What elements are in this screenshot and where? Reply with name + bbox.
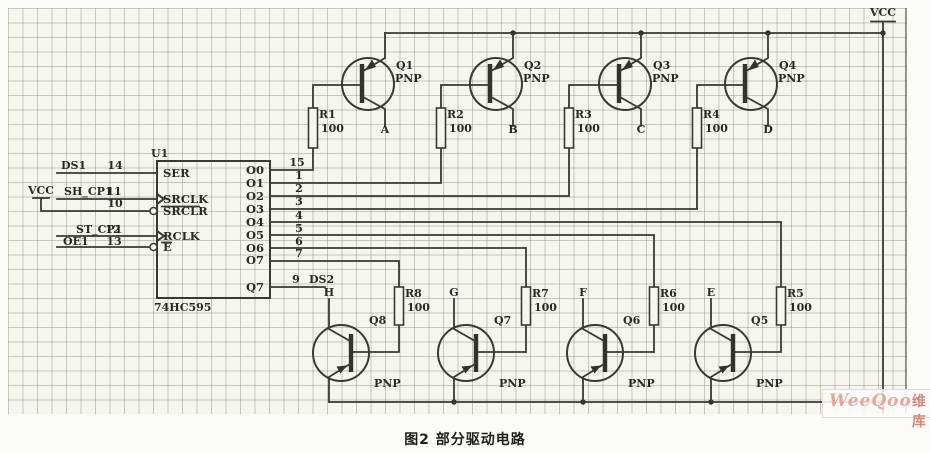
inversion-bubble-srclr: [150, 208, 157, 215]
resistor-body: [437, 108, 446, 148]
ic-74hc595: U1 74HC595 VCC DS1 14 SH_CP1 11 10 ST_CP…: [27, 147, 334, 314]
watermark: WeeQoo 维库: [822, 389, 930, 418]
resistor-value: 100: [577, 122, 600, 135]
pin-number-5: 5: [295, 222, 303, 235]
transistor-q8: Q8 PNP H: [313, 286, 401, 402]
resistor-value: 100: [662, 301, 685, 314]
net-label-f: F: [579, 286, 587, 299]
resistor-r7: R7 100: [522, 287, 558, 325]
ic-pin-name-o4: O4: [246, 215, 264, 229]
net-label-ds2: DS2: [309, 273, 334, 286]
pnp-arrow-icon: [622, 60, 633, 71]
ic-pin-name-o1: O1: [246, 176, 264, 190]
vcc-left-label: VCC: [27, 184, 54, 197]
collector-lead: [454, 299, 475, 341]
schematic-scan: VCC U1 74HC595: [0, 0, 930, 453]
resistor-r6: R6 100: [650, 287, 686, 325]
transistor-type: PNP: [499, 377, 526, 390]
pin-number-7: 7: [295, 247, 303, 260]
resistor-ref: R5: [787, 287, 804, 300]
resistor-body: [309, 108, 318, 148]
transistor-ref: Q4: [779, 59, 797, 72]
net-label-b: B: [508, 123, 517, 136]
transistor-type: PNP: [756, 377, 783, 390]
net-label-a: A: [380, 123, 390, 136]
resistor-r2: R2 100: [437, 108, 473, 148]
resistor-ref: R3: [575, 108, 592, 121]
transistor-q6: Q6 PNP F: [567, 286, 655, 402]
resistor-body: [650, 287, 659, 325]
transistor-ref: Q2: [524, 59, 541, 72]
ic-part-label: 74HC595: [154, 301, 211, 314]
ic-pin-name-o7: O7: [246, 253, 264, 267]
transistor-type: PNP: [374, 377, 401, 390]
pin-number-2: 2: [295, 182, 303, 195]
net-label-c: C: [637, 123, 646, 136]
transistor-ref: Q7: [494, 314, 511, 327]
ic-pin-name-o5: O5: [246, 228, 264, 242]
transistor-ref: Q3: [653, 59, 670, 72]
pnp-arrow-icon: [365, 60, 376, 71]
ic-pin-name-o2: O2: [246, 189, 264, 203]
transistor-ref: Q5: [751, 314, 768, 327]
transistor-q5: Q5 PNP E: [695, 286, 783, 402]
collector-lead: [620, 97, 641, 126]
collector-lead: [746, 97, 768, 126]
watermark-brand: WeeQoo: [829, 391, 912, 411]
collector-lead: [583, 299, 604, 341]
net-label-oe1: OE1: [63, 235, 89, 248]
resistor-r5: R5 100: [777, 287, 813, 325]
transistor-ref: Q1: [396, 59, 413, 72]
wire-net-o3: [270, 85, 745, 209]
pin-number-13: 13: [106, 235, 121, 248]
watermark-suffix: 维库: [912, 391, 926, 431]
resistor-value: 100: [449, 122, 472, 135]
collector-lead: [491, 97, 513, 126]
resistor-ref: R7: [532, 287, 549, 300]
net-label-g: G: [449, 286, 458, 299]
pin-number-1: 1: [295, 169, 303, 182]
resistor-ref: R6: [660, 287, 677, 300]
resistor-ref: R1: [319, 108, 336, 121]
resistor-ref: R4: [703, 108, 720, 121]
transistor-type: PNP: [778, 72, 805, 85]
wire-net-vcc-to-srclr: [33, 198, 150, 211]
bottom-rail: [329, 399, 886, 404]
net-label-e: E: [707, 286, 715, 299]
transistor-ref: Q6: [623, 314, 641, 327]
resistor-r4: R4 100: [693, 108, 729, 148]
ic-pin-name-o3: O3: [246, 202, 264, 216]
collector-lead: [363, 97, 385, 126]
ic-pin-name-ser: SER: [163, 166, 190, 180]
resistor-body: [395, 287, 404, 325]
pin-number-14: 14: [107, 159, 123, 172]
resistor-value: 100: [705, 122, 728, 135]
resistor-body: [565, 108, 574, 148]
resistor-r3: R3 100: [565, 108, 601, 148]
net-label-sh-cp1: SH_CP1: [64, 185, 113, 199]
resistor-ref: R8: [405, 287, 422, 300]
pin-number-15: 15: [289, 156, 304, 169]
transistor-q7: Q7 PNP G: [438, 286, 526, 402]
vcc-rail-wire: [385, 22, 895, 414]
ic-pin-name-q7: Q7: [246, 280, 264, 294]
resistor-r1: R1 100: [309, 108, 345, 148]
resistor-ref: R2: [447, 108, 464, 121]
pnp-arrow-icon: [493, 60, 504, 71]
collector-lead: [329, 299, 350, 341]
vcc-top-label: VCC: [869, 6, 896, 19]
wire-net-o7: [270, 261, 399, 352]
net-label-h: H: [324, 286, 334, 299]
resistor-body: [777, 287, 786, 325]
net-label-ds1: DS1: [61, 159, 86, 172]
resistor-value: 100: [407, 301, 430, 314]
pin-number-3: 3: [295, 195, 303, 208]
transistor-type: PNP: [652, 72, 679, 85]
transistor-type: PNP: [395, 72, 422, 85]
transistor-type: PNP: [628, 377, 655, 390]
junction-dot: [880, 30, 885, 35]
inversion-bubble-e: [150, 244, 157, 251]
ic-pin-name-o0: O0: [246, 163, 264, 177]
transistor-ref: Q8: [369, 314, 387, 327]
resistor-value: 100: [534, 301, 557, 314]
pin-number-4: 4: [295, 209, 303, 222]
resistor-r8: R8 100: [395, 287, 431, 325]
transistor-type: PNP: [523, 72, 550, 85]
ic-ref-label: U1: [151, 147, 168, 160]
pin-number-10: 10: [107, 197, 123, 210]
collector-lead: [711, 299, 732, 341]
resistor-body: [522, 287, 531, 325]
pin-number-9: 9: [292, 273, 300, 286]
resistor-body: [693, 108, 702, 148]
net-label-d: D: [763, 123, 773, 136]
resistor-value: 100: [321, 122, 344, 135]
resistor-value: 100: [789, 301, 812, 314]
pnp-arrow-icon: [748, 60, 759, 71]
schematic-canvas: VCC U1 74HC595: [0, 0, 930, 453]
figure-caption: 图2 部分驱动电路: [0, 429, 930, 449]
